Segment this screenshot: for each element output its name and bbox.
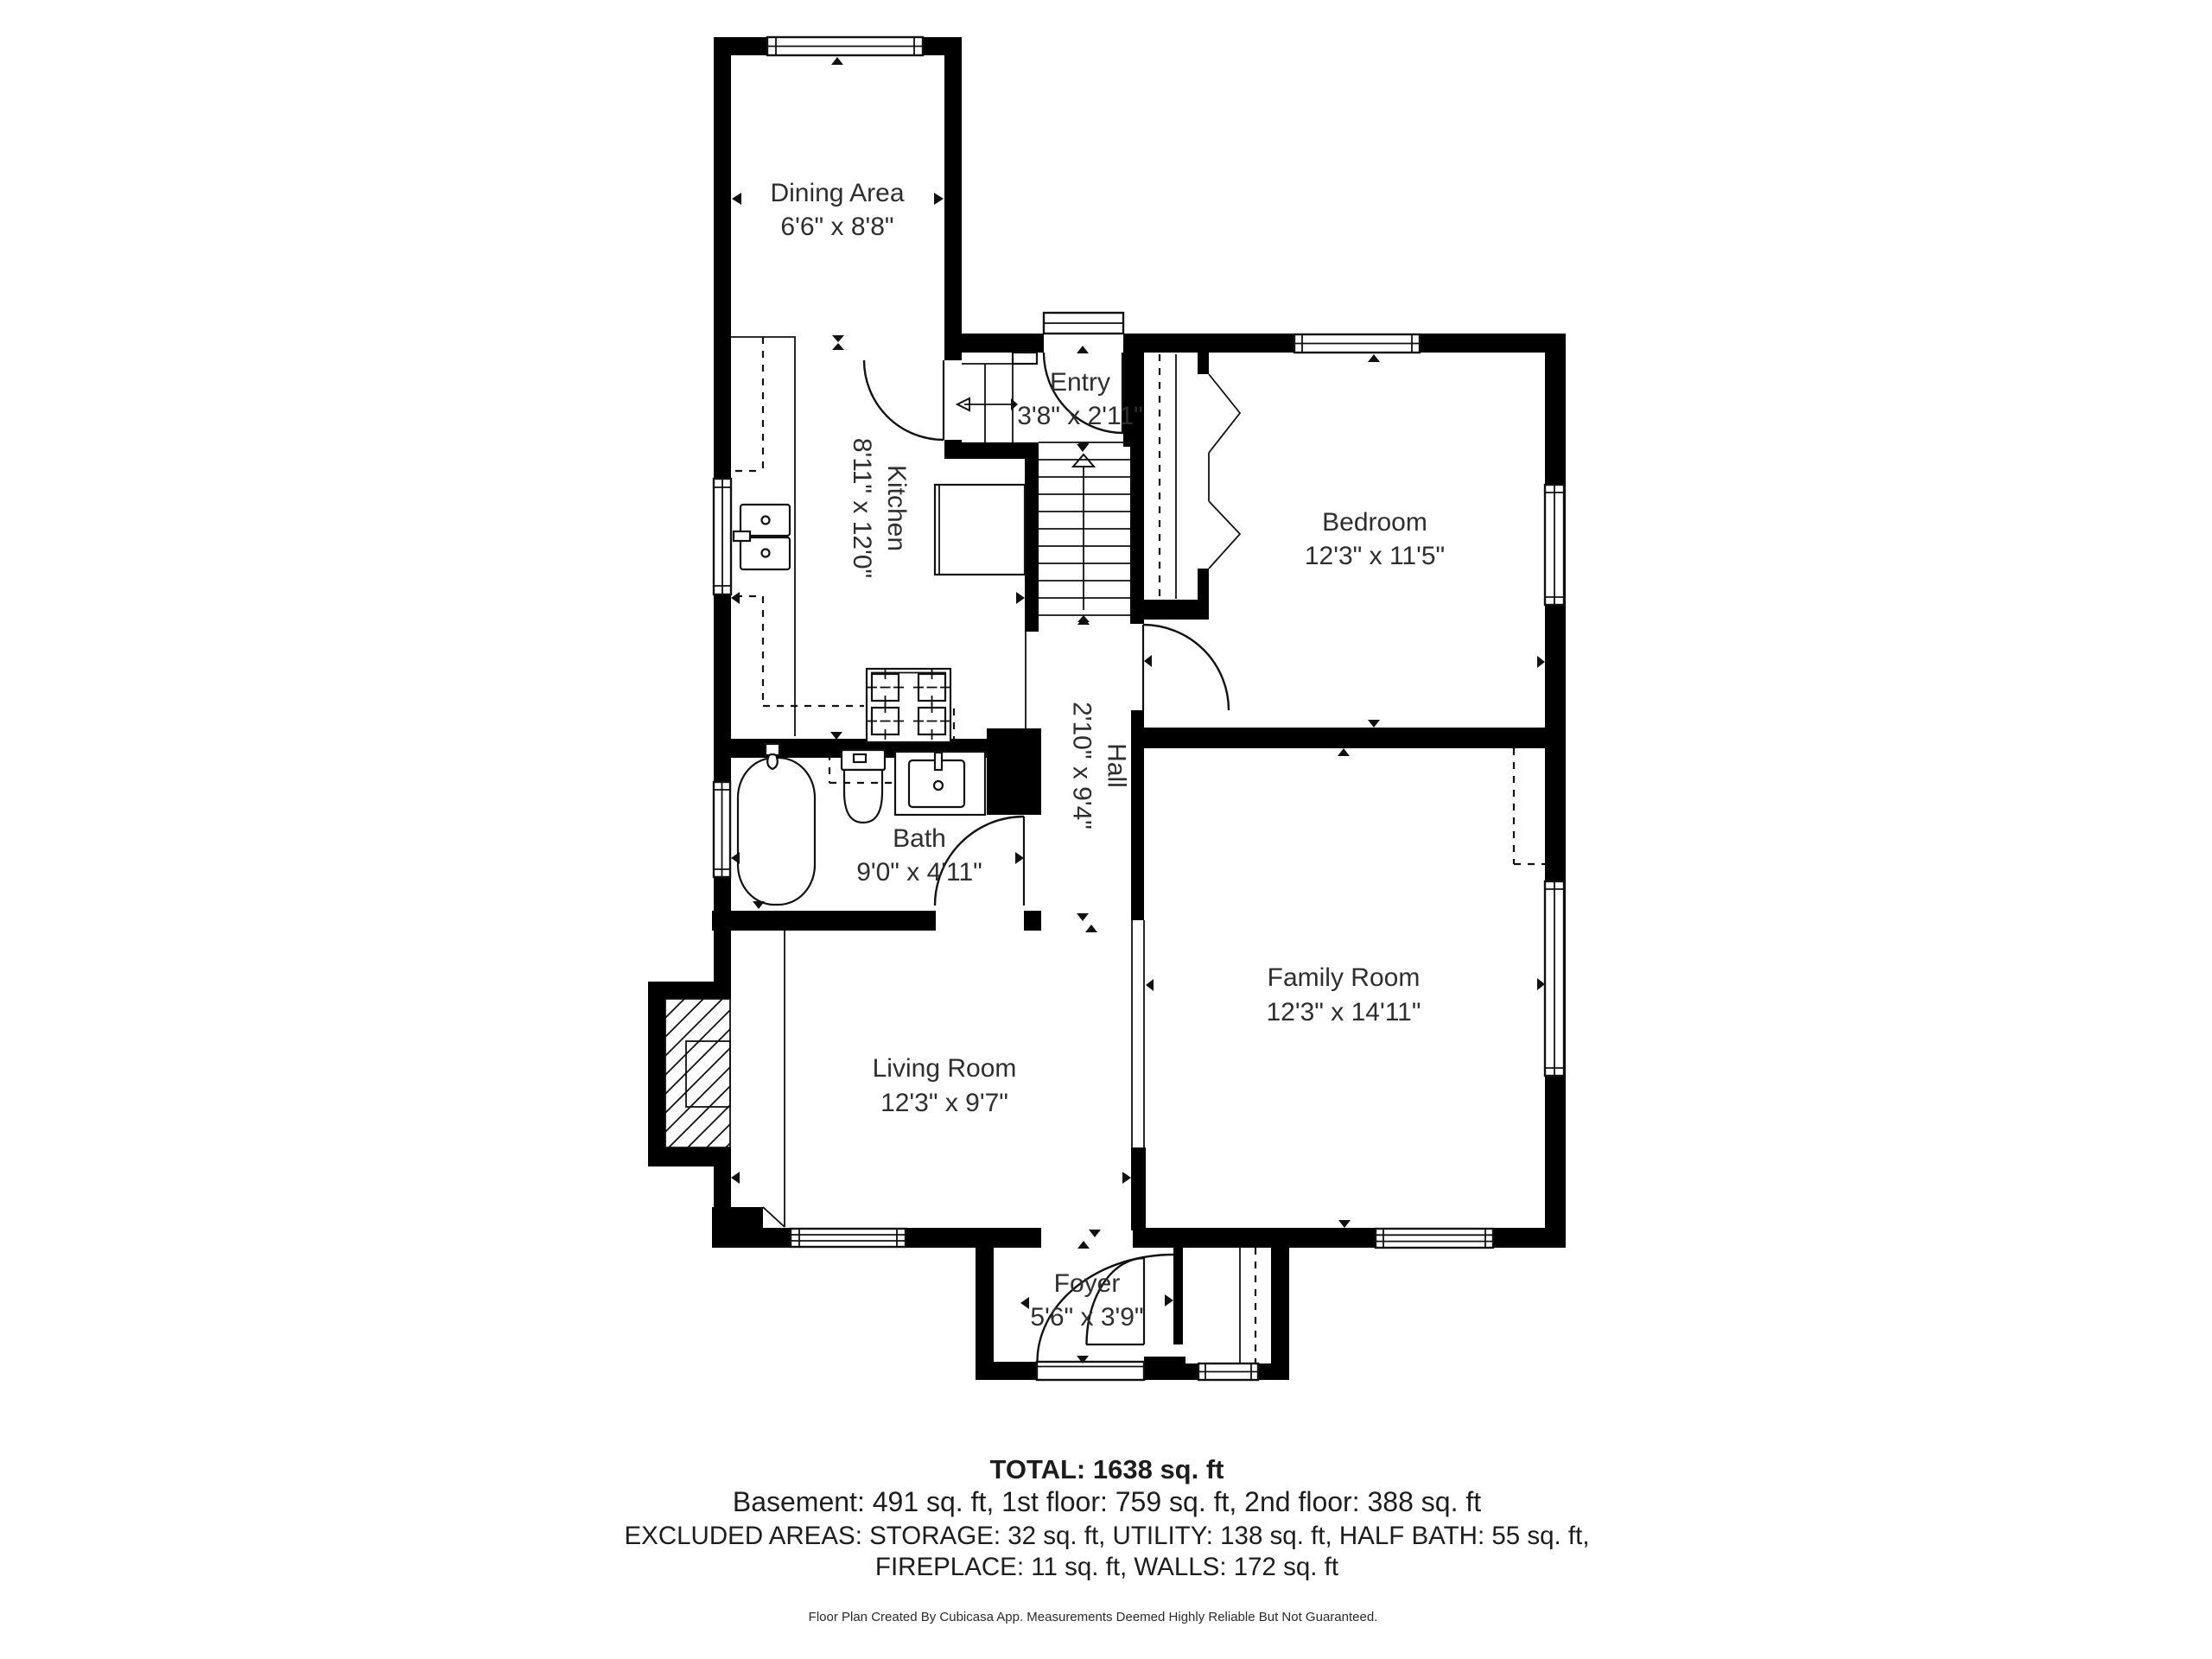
svg-text:Dining Area: Dining Area bbox=[770, 179, 904, 207]
svg-text:Bedroom: Bedroom bbox=[1322, 508, 1427, 537]
svg-text:TOTAL: 1638 sq. ft: TOTAL: 1638 sq. ft bbox=[989, 1454, 1224, 1484]
svg-text:3'8" x 2'11": 3'8" x 2'11" bbox=[1017, 402, 1143, 430]
svg-text:12'3" x 9'7": 12'3" x 9'7" bbox=[880, 1089, 1008, 1117]
svg-text:Entry: Entry bbox=[1050, 368, 1110, 397]
svg-text:Hall: Hall bbox=[1103, 743, 1131, 788]
svg-text:8'11" x 12'0": 8'11" x 12'0" bbox=[848, 438, 876, 578]
svg-text:Living Room: Living Room bbox=[873, 1054, 1017, 1083]
svg-text:Foyer: Foyer bbox=[1054, 1269, 1121, 1298]
svg-text:Bath: Bath bbox=[893, 824, 946, 853]
svg-text:Floor Plan Created By Cubicasa: Floor Plan Created By Cubicasa App. Meas… bbox=[809, 1610, 1378, 1624]
svg-text:12'3" x 14'11": 12'3" x 14'11" bbox=[1267, 998, 1421, 1027]
svg-text:Kitchen: Kitchen bbox=[882, 465, 911, 551]
svg-text:5'6" x 3'9": 5'6" x 3'9" bbox=[1030, 1303, 1143, 1332]
svg-text:EXCLUDED AREAS: STORAGE: 32 sq: EXCLUDED AREAS: STORAGE: 32 sq. ft, UTIL… bbox=[624, 1522, 1589, 1550]
svg-text:FIREPLACE: 11 sq. ft, WALLS: 1: FIREPLACE: 11 sq. ft, WALLS: 172 sq. ft bbox=[875, 1553, 1338, 1581]
svg-text:9'0" x 4'11": 9'0" x 4'11" bbox=[856, 858, 982, 887]
svg-text:12'3" x 11'5": 12'3" x 11'5" bbox=[1305, 542, 1445, 570]
svg-text:6'6" x 8'8": 6'6" x 8'8" bbox=[780, 213, 893, 241]
svg-text:Basement: 491 sq. ft, 1st floo: Basement: 491 sq. ft, 1st floor: 759 sq.… bbox=[733, 1486, 1481, 1517]
svg-text:Family Room: Family Room bbox=[1268, 963, 1421, 992]
svg-text:2'10" x 9'4": 2'10" x 9'4" bbox=[1068, 702, 1096, 829]
